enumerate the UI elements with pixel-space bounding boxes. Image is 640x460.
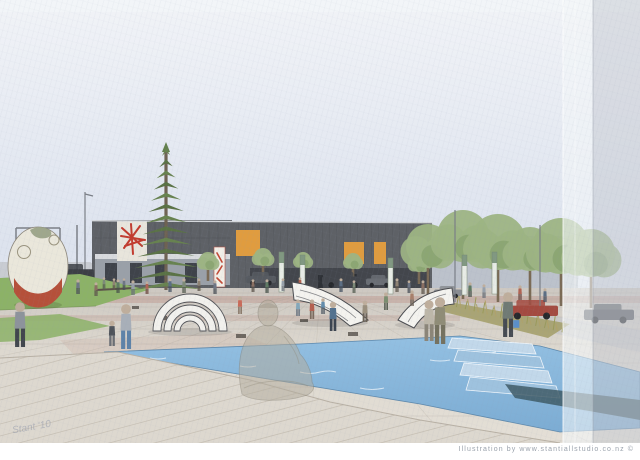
glass-panel-overlay: [563, 0, 640, 443]
red-artwork-panel: [117, 221, 147, 261]
plaza-scene: [0, 0, 640, 443]
architectural-illustration: Stant '10 Illustration by www.stantialls…: [0, 0, 640, 460]
credit-text: Illustration by www.stantiallstudio.co.n…: [459, 446, 634, 453]
